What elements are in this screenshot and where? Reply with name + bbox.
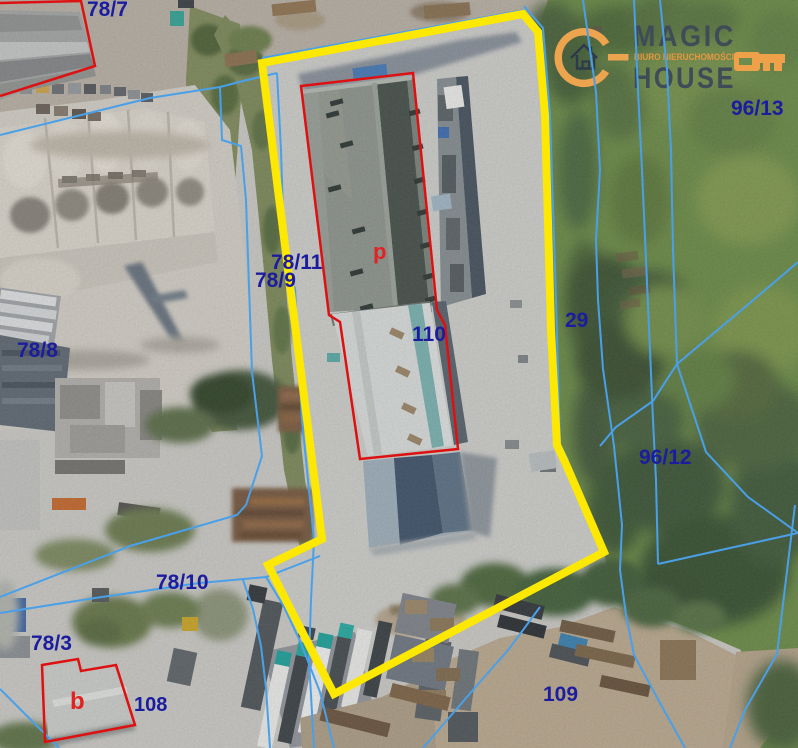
svg-text:78/9: 78/9 <box>255 269 296 292</box>
svg-text:110: 110 <box>412 323 446 346</box>
svg-text:MAGIC: MAGIC <box>633 20 736 53</box>
svg-text:BIURO NIERUCHOMOŚCI: BIURO NIERUCHOMOŚCI <box>634 51 734 62</box>
svg-text:78/8: 78/8 <box>17 339 58 362</box>
svg-text:96/13: 96/13 <box>731 97 784 120</box>
svg-text:108: 108 <box>134 694 167 716</box>
svg-text:78/7: 78/7 <box>87 0 128 21</box>
svg-text:78/3: 78/3 <box>31 632 72 655</box>
svg-text:109: 109 <box>543 683 578 706</box>
svg-text:HOUSE: HOUSE <box>633 62 736 95</box>
svg-text:p: p <box>373 239 386 264</box>
svg-text:29: 29 <box>565 309 588 332</box>
svg-text:b: b <box>70 688 85 715</box>
svg-text:78/10: 78/10 <box>156 571 209 594</box>
svg-text:96/12: 96/12 <box>639 446 692 469</box>
